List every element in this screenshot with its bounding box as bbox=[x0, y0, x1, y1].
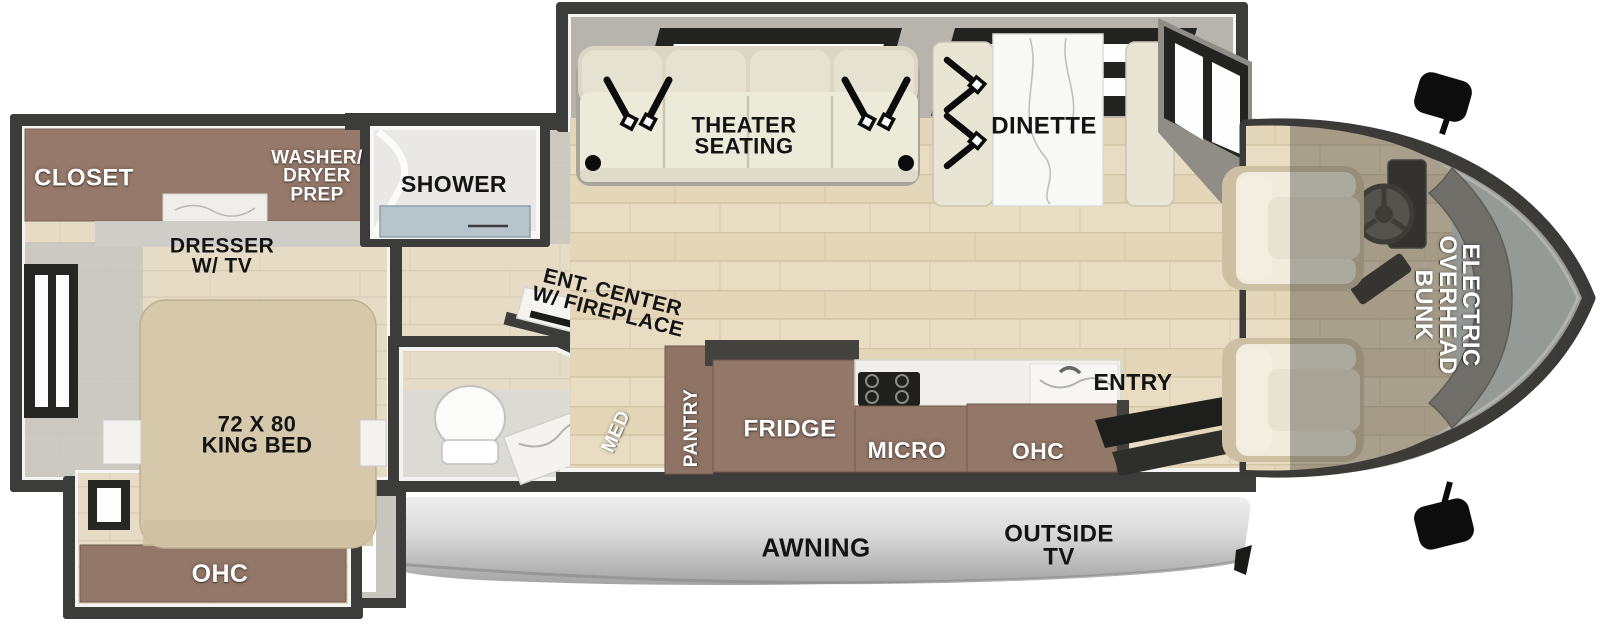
microwave-cabinet bbox=[855, 406, 967, 472]
nightstand bbox=[103, 420, 141, 464]
bedroom-window-icon bbox=[24, 264, 78, 418]
shower-stall bbox=[360, 118, 550, 247]
side-mirror-icon bbox=[1412, 482, 1477, 552]
rv-floorplan: CLOSET WASHER/ DRYER PREP SHOWER DRESSER… bbox=[0, 0, 1600, 629]
bedroom-ohc-cabinet bbox=[80, 545, 346, 602]
stove-icon bbox=[858, 372, 920, 406]
floorplan-drawing bbox=[0, 0, 1600, 629]
overhead-bunk-area bbox=[1290, 123, 1588, 474]
shower-pan bbox=[380, 206, 530, 237]
sofa-dot-icon bbox=[898, 155, 914, 171]
dinette-booth bbox=[933, 34, 1174, 206]
main-section bbox=[556, 2, 1256, 492]
sofa-dot-icon bbox=[585, 155, 601, 171]
kitchen-ohc-cabinet bbox=[967, 404, 1117, 472]
bed-slide-window-icon bbox=[88, 480, 130, 530]
fridge bbox=[713, 360, 859, 472]
dinette-table bbox=[993, 34, 1103, 206]
dresser-shelf bbox=[95, 221, 362, 247]
cab-section bbox=[1222, 69, 1589, 552]
king-bed bbox=[140, 300, 376, 548]
dinette-bench bbox=[933, 42, 993, 206]
side-mirror-icon bbox=[1411, 69, 1474, 134]
nightstand bbox=[360, 420, 386, 466]
kitchen-sink-icon bbox=[1030, 364, 1118, 404]
kitchen bbox=[665, 340, 1129, 474]
awning-bar bbox=[364, 497, 1252, 585]
